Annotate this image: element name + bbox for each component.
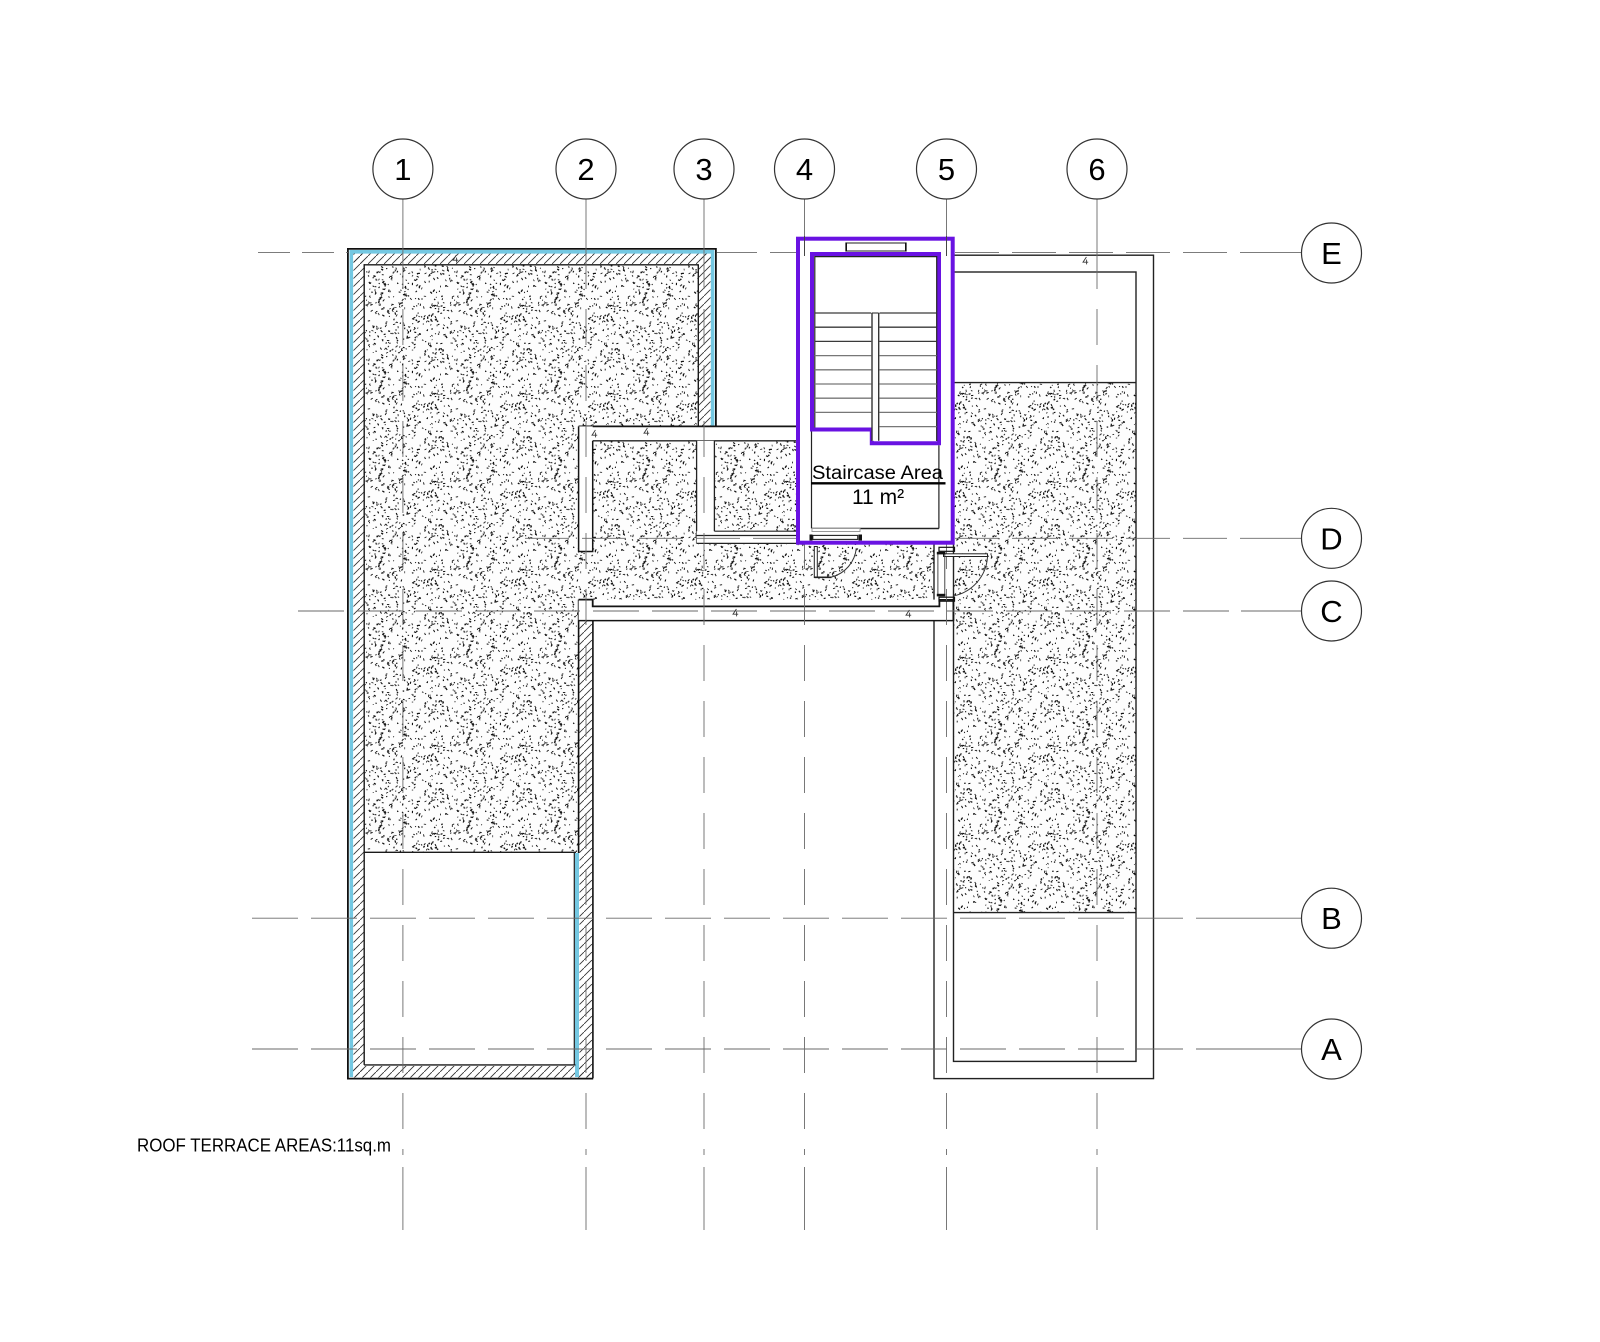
svg-text:C: C (1320, 594, 1342, 629)
svg-text:6: 6 (1088, 152, 1105, 187)
svg-text:E: E (1321, 236, 1342, 271)
svg-text:11 m²: 11 m² (852, 486, 904, 509)
svg-text:A: A (1321, 1032, 1342, 1067)
svg-text:1: 1 (394, 152, 411, 187)
svg-text:2: 2 (577, 152, 594, 187)
svg-text:5: 5 (938, 152, 955, 187)
svg-text:Staircase Area: Staircase Area (812, 463, 943, 484)
svg-text:D: D (1320, 521, 1342, 556)
svg-text:B: B (1321, 901, 1342, 936)
svg-text:ROOF TERRACE AREAS:11sq.m: ROOF TERRACE AREAS:11sq.m (137, 1135, 391, 1156)
svg-text:3: 3 (695, 152, 712, 187)
svg-text:4: 4 (796, 152, 813, 187)
